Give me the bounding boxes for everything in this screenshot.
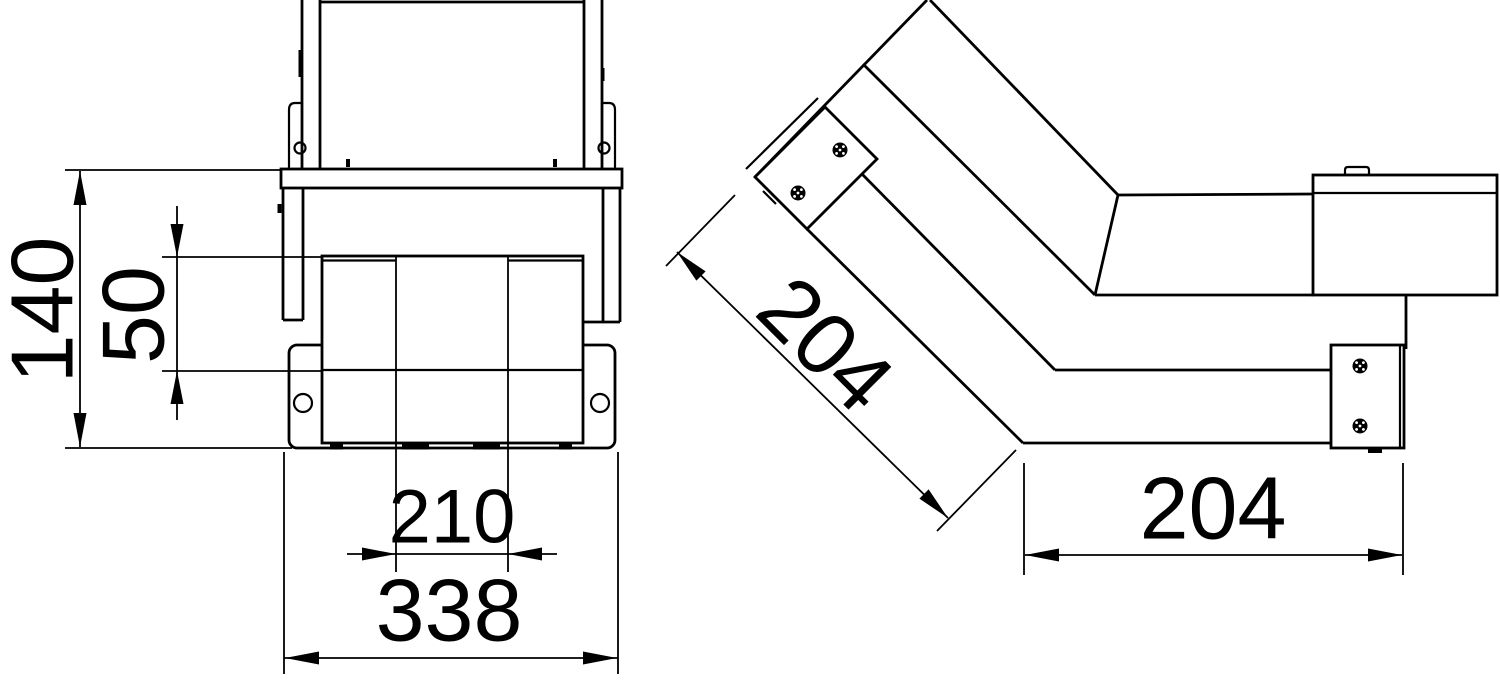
side-end-box [1313,167,1497,295]
bottom-tab [402,444,429,450]
dim-text-204-horizontal: 204 [1140,459,1287,558]
arrowhead-icon [285,652,319,665]
arrowhead-icon [1025,549,1059,562]
dim-inner-width: 210 [347,475,557,561]
tab-mark [553,159,557,167]
bottom-tab [330,444,343,450]
right-hook-hole [599,143,610,154]
dim-text-50: 50 [84,266,183,364]
rail-slot-mark [299,50,303,77]
screw-head [1353,419,1368,434]
bottom-tab [473,444,500,450]
side-right-bracket [1331,345,1404,453]
drawing-canvas: 140 50 210 338 [0,0,1500,682]
leg-slot-mark [278,204,282,213]
front-top-channel [299,0,605,169]
dim-text-140: 140 [0,237,92,384]
arrowhead-icon [1368,549,1402,562]
dim-text-338: 338 [376,561,523,660]
arrowhead-icon [74,171,87,205]
arrowhead-icon [583,652,617,665]
slot-mark [1048,143,1066,161]
tab-mark [346,159,350,167]
screw-head [1353,359,1368,374]
bottom-tab [559,444,572,450]
front-tray [322,256,583,443]
dim-text-210: 210 [389,475,516,560]
technical-drawing: 140 50 210 338 [0,0,1500,682]
arrowhead-icon [171,224,184,257]
bracket-tab [1368,448,1382,453]
arrowhead-icon [74,413,87,447]
cross-bar [281,169,622,188]
slot-mark [959,53,977,71]
right-hook [602,103,615,169]
dim-diagonal-length: 204 [666,195,1016,531]
dim-text-204-diagonal: 204 [739,257,913,431]
dim-horizontal-length: 204 [1024,459,1403,576]
rail-slot-mark [601,68,605,81]
left-hook-hole [295,143,306,154]
screw-head [833,143,848,158]
arrowhead-icon [171,371,184,404]
dim-channel-height: 50 [84,206,323,420]
left-hook [289,103,302,169]
screw-head [791,186,806,201]
